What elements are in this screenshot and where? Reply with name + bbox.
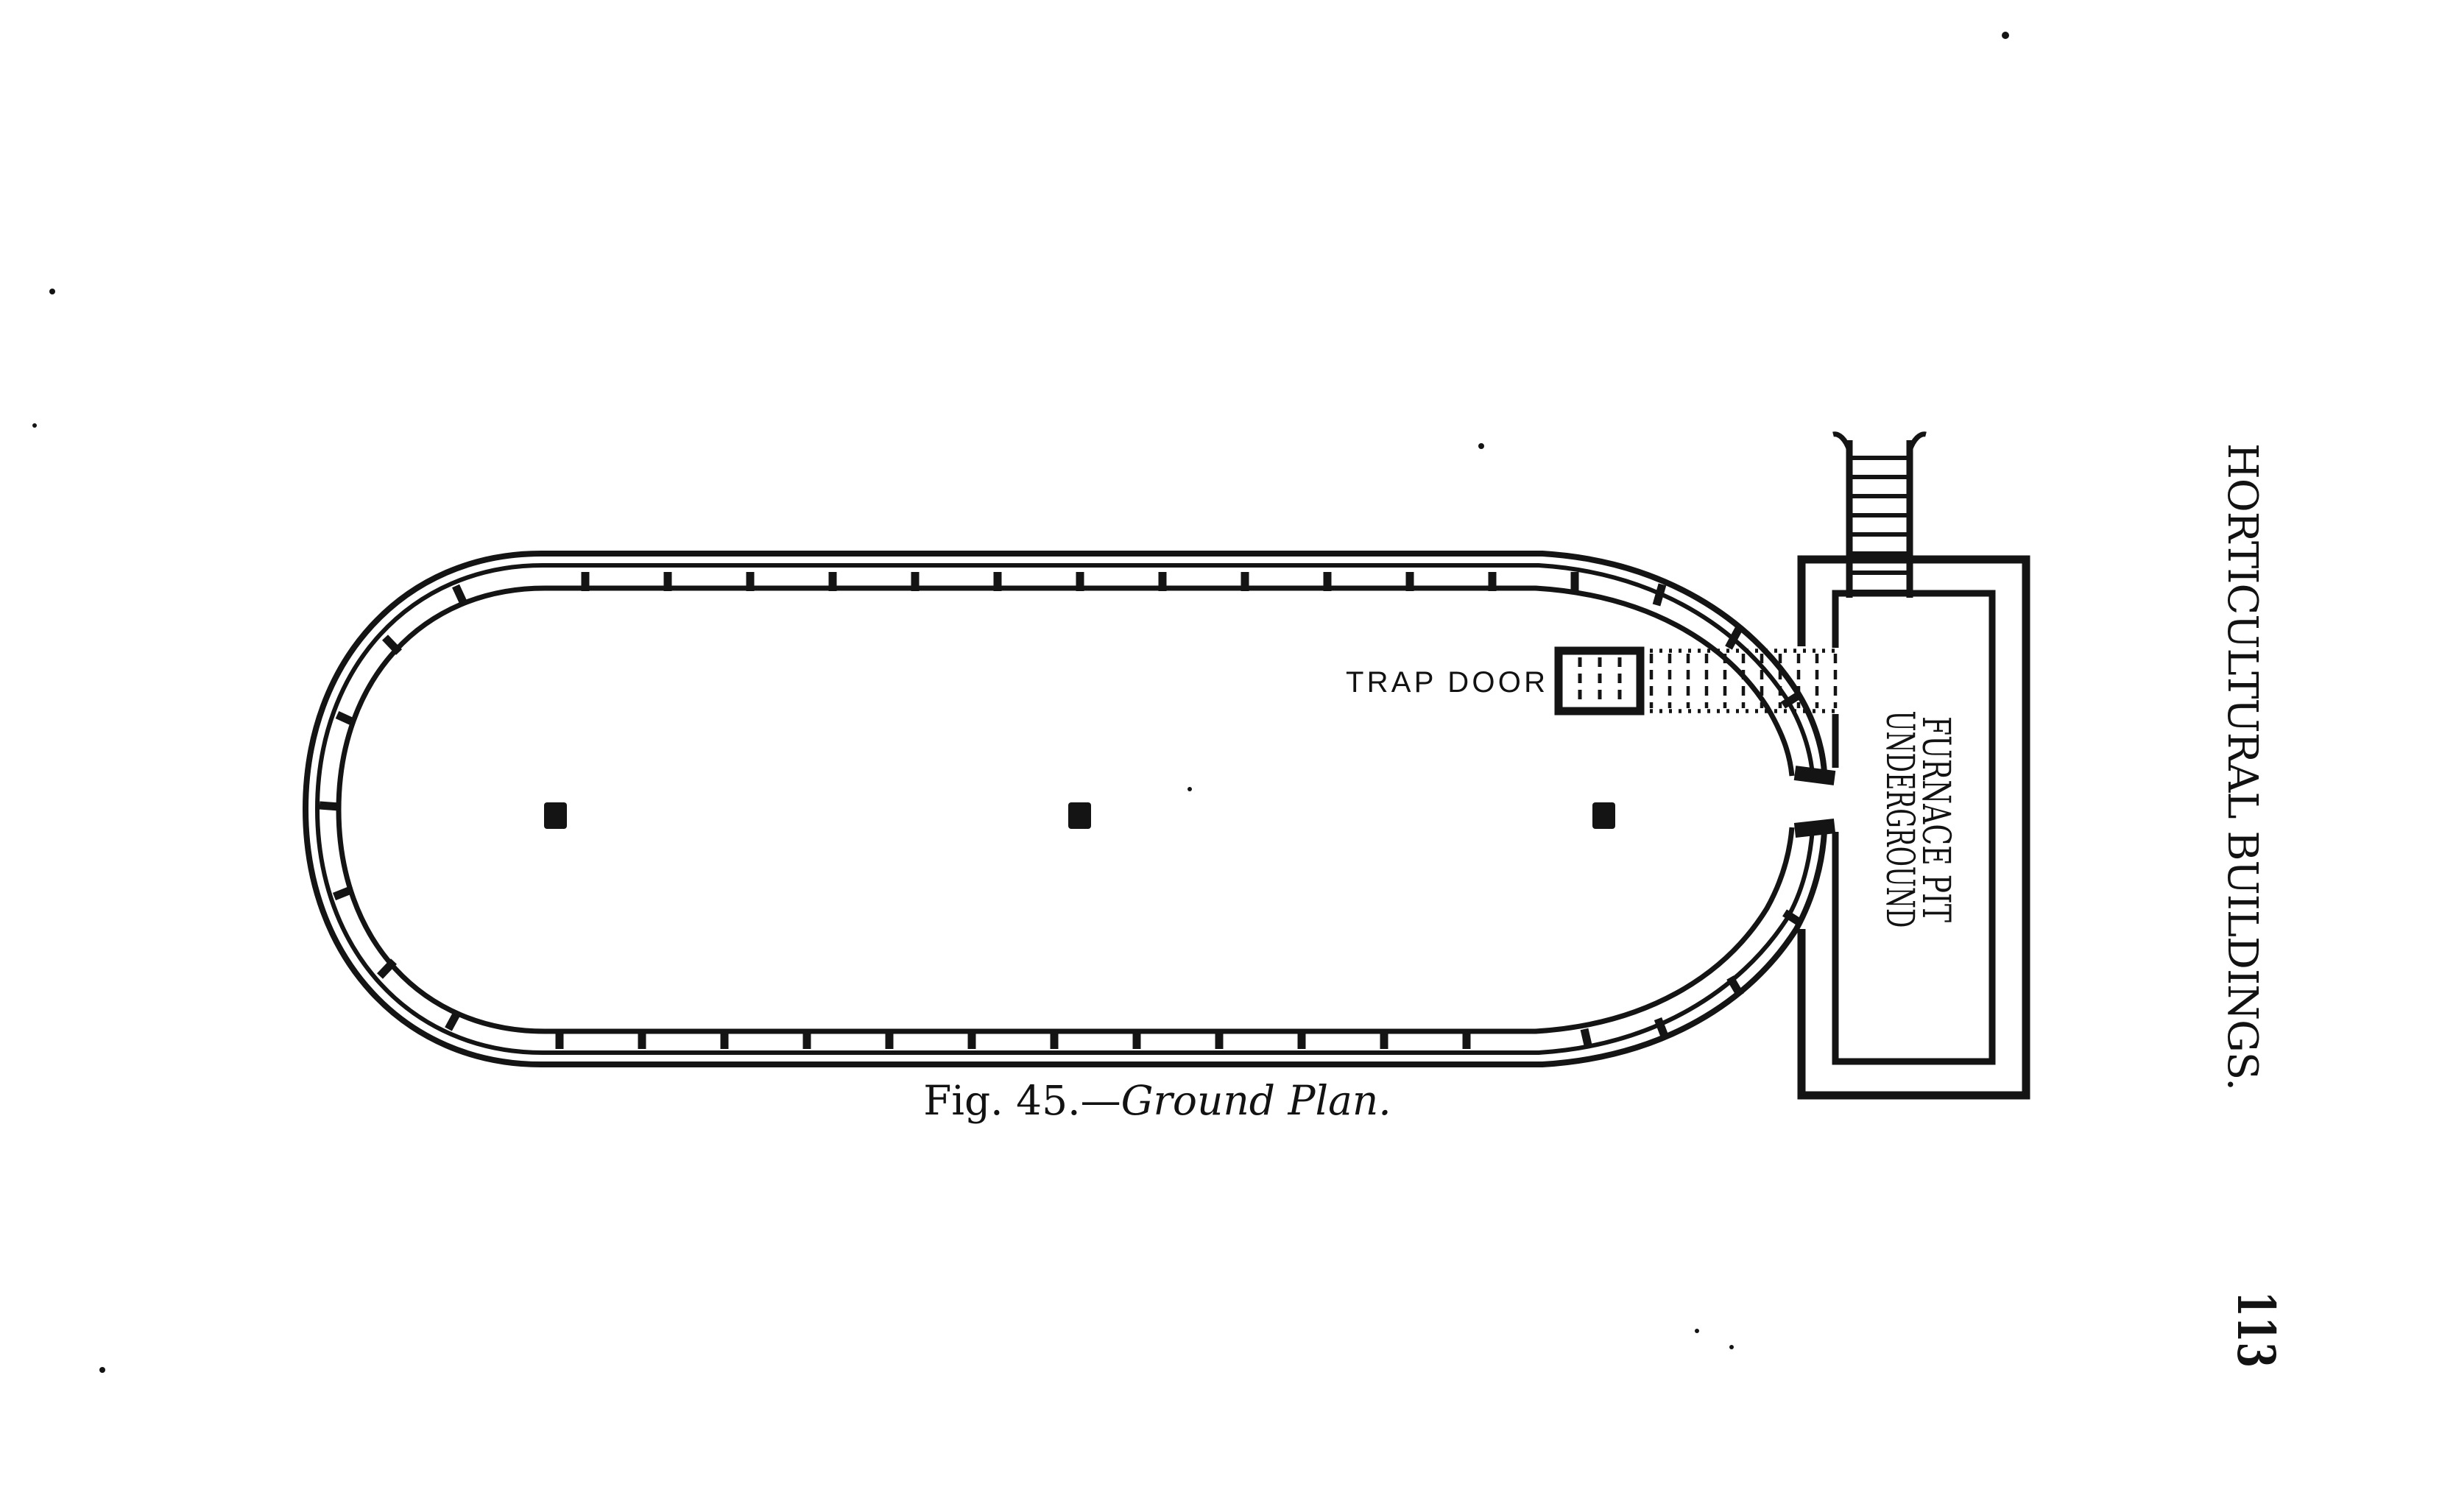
underground-passage [1640,651,1841,711]
glasshouse-outer-wall-inner-line [317,565,1813,1053]
furnace-pit-label-line2: UNDERGROUND [1877,711,1922,928]
support-post [1592,802,1615,829]
running-head: HORTICULTURAL BUILDINGS. [2218,443,2266,1091]
page-number: 113 [2226,1291,2287,1368]
furnace-pit-room: FURNACE PIT UNDERGROUND [1801,434,2026,1095]
figure-caption-title: Ground Plan. [1121,1077,1391,1124]
support-post [544,802,567,829]
furnace-pit-label: FURNACE PIT UNDERGROUND [1877,711,1958,928]
ladder [1833,434,1926,598]
trap-door-label: TRAP DOOR [1346,666,1548,699]
trap-door [1559,651,1640,711]
scanned-book-page: FURNACE PIT UNDERGROUND TRAP DOOR [0,0,2442,1512]
glasshouse-walls [306,554,1835,1064]
support-post [1068,802,1091,829]
scan-specks [32,32,2009,1373]
support-posts [544,802,1615,829]
wall-ticks [320,572,1801,1049]
doorway-wall-ends [1795,773,1835,830]
ground-plan-figure: FURNACE PIT UNDERGROUND TRAP DOOR [0,0,2442,1512]
figure-caption: Fig. 45.—Ground Plan. [923,1077,1391,1124]
figure-caption-label: Fig. 45.— [923,1077,1121,1124]
